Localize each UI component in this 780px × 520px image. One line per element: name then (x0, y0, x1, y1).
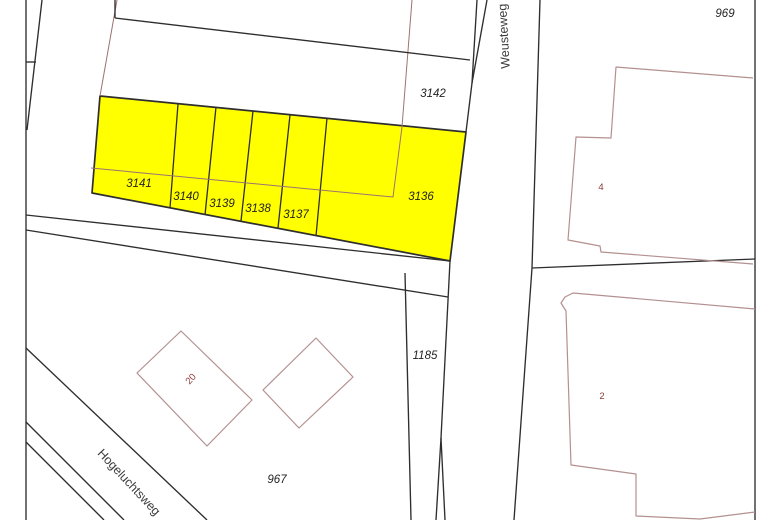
house-number-label-2: 2 (599, 391, 604, 402)
cadastral-map-svg: 9693142314131403139313831373136118596742… (0, 0, 780, 520)
parcel-label-3142: 3142 (420, 88, 446, 100)
parcel-label-3139: 3139 (209, 198, 235, 210)
cadastral-map: 9693142314131403139313831373136118596742… (0, 0, 780, 520)
parcel-label-969: 969 (715, 8, 735, 20)
parcel-label-3136: 3136 (408, 191, 434, 203)
parcel-label-3140: 3140 (173, 191, 199, 203)
parcel-label-3138: 3138 (245, 203, 271, 215)
parcel-label-967: 967 (267, 474, 287, 486)
parcel-label-3141: 3141 (126, 178, 152, 190)
parcel-label-3137: 3137 (283, 209, 309, 221)
parcel-label-1185: 1185 (413, 350, 438, 362)
house-number-label-4: 4 (598, 182, 603, 193)
map-background (0, 0, 780, 520)
